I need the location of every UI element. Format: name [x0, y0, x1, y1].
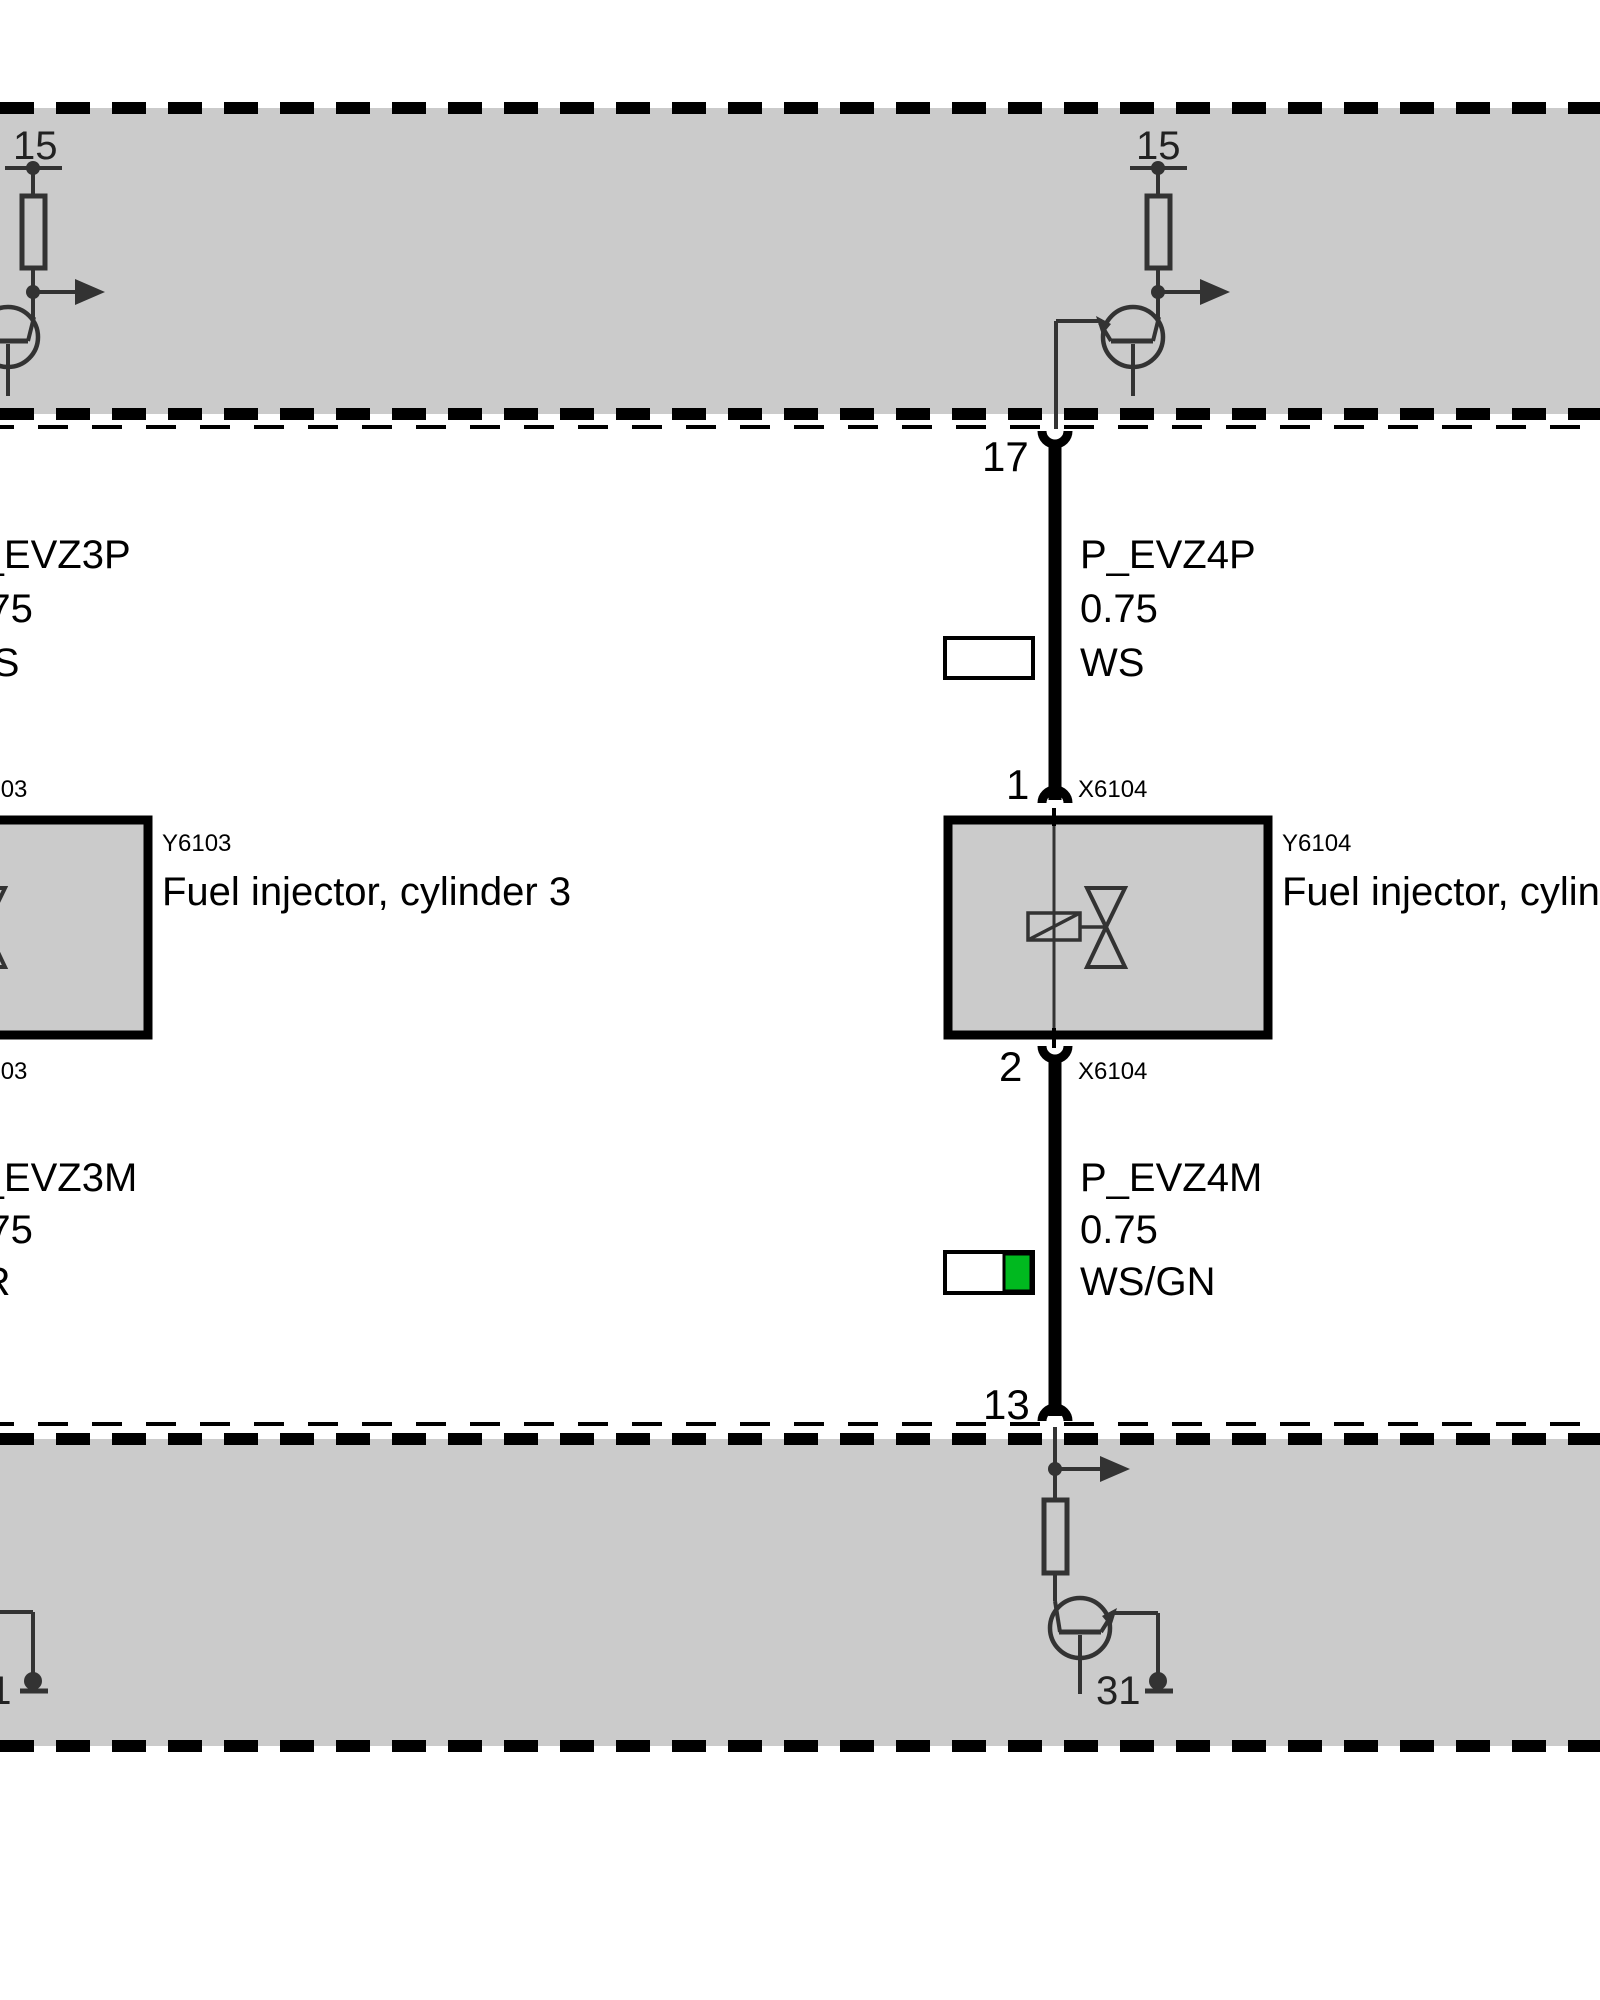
- color-box-ws-gn-stripe: [1004, 1254, 1031, 1291]
- terminal-15-label-left: 15: [13, 126, 58, 166]
- wire-name: P_EVZ4P: [1080, 528, 1256, 582]
- wire-name: P_EVZ3P: [0, 528, 131, 582]
- wiring-diagram-page: 15 15 17 1 2 13 X6104 X6104 X6103 X6103 …: [0, 0, 1600, 2000]
- wire-color-code: WS/GN: [1080, 1256, 1262, 1308]
- ground-dot: [24, 1672, 42, 1690]
- wire-size: 0.75: [1080, 582, 1256, 636]
- wiring-diagram-canvas: [0, 0, 1600, 2000]
- ecu-top-band: [0, 108, 1600, 427]
- wire-label-p-evz3m: P_EVZ3M 0.75 BR: [0, 1152, 137, 1308]
- ecu-bottom-band: [0, 1424, 1600, 1746]
- wire-size: 0.75: [0, 582, 131, 636]
- terminal-31-label-left: 31: [0, 1671, 12, 1711]
- connector-id-x6103-bottom: X6103: [0, 1060, 27, 1084]
- connector-id-x6104-bottom: X6104: [1078, 1060, 1147, 1084]
- component-id-y6103: Y6103: [162, 832, 231, 856]
- pin-1-label: 1: [1006, 764, 1029, 806]
- ground-dot: [1149, 1672, 1167, 1690]
- component-box: [0, 820, 148, 1035]
- terminal-15-label-right: 15: [1136, 126, 1181, 166]
- wire-color-code: WS: [0, 636, 131, 690]
- ecu-bottom-band-fill: [0, 1439, 1600, 1746]
- connector-socket-icon: [1042, 431, 1068, 444]
- wire-color-code: WS: [1080, 636, 1256, 690]
- pin-17-label: 17: [982, 436, 1029, 478]
- connector-id-x6104-top: X6104: [1078, 778, 1147, 802]
- color-box-ws: [945, 638, 1033, 678]
- ecu-top-band-fill: [0, 108, 1600, 414]
- connector-id-x6103-top: X6103: [0, 778, 27, 802]
- wire-name: P_EVZ3M: [0, 1152, 137, 1204]
- wire-label-p-evz4p: P_EVZ4P 0.75 WS: [1080, 528, 1256, 690]
- injector-box-right: [948, 820, 1268, 1035]
- wire-size: 0.75: [0, 1204, 137, 1256]
- injector-box-left: [0, 820, 148, 1035]
- wire-name: P_EVZ4M: [1080, 1152, 1262, 1204]
- wire-label-p-evz4m: P_EVZ4M 0.75 WS/GN: [1080, 1152, 1262, 1308]
- component-id-y6104: Y6104: [1282, 832, 1351, 856]
- wire-size: 0.75: [1080, 1204, 1262, 1256]
- wire-color-code: BR: [0, 1256, 137, 1308]
- pin-2-label: 2: [999, 1046, 1022, 1088]
- pin-13-label: 13: [983, 1384, 1030, 1426]
- component-name-y6104: Fuel injector, cylinder 4: [1282, 872, 1600, 912]
- component-name-y6103: Fuel injector, cylinder 3: [162, 872, 571, 912]
- terminal-31-label-right: 31: [1096, 1671, 1141, 1711]
- wire-label-p-evz3p: P_EVZ3P 0.75 WS: [0, 528, 131, 690]
